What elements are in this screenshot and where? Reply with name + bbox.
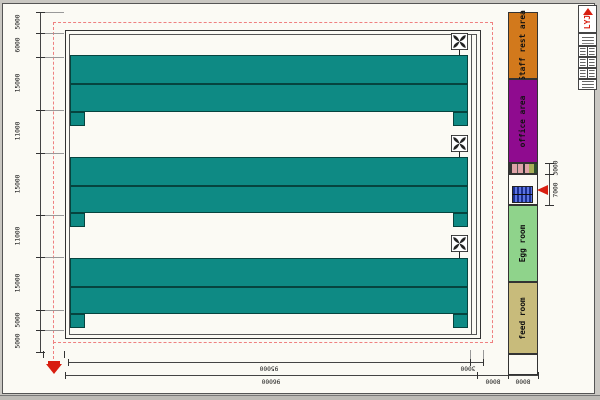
room-staff-rest-area: Staff rest area: [508, 12, 538, 79]
cage-end-tab: [70, 314, 85, 328]
bottom-dim-line-1: [68, 362, 483, 363]
fan-icon: [451, 135, 468, 152]
dim-tick: [538, 372, 539, 379]
dim-label: 11000: [15, 122, 22, 141]
bottom-dim-line-2: [65, 375, 538, 376]
entrance-arrow-icon: [46, 364, 62, 374]
room-label: Egg room: [519, 225, 528, 263]
fan-connector: [459, 50, 460, 55]
room-label: Staff rest area: [519, 10, 528, 80]
dim-label: 15000: [15, 175, 22, 194]
cage-end-tab: [453, 213, 468, 227]
cage-end-tab: [453, 112, 468, 126]
room-office-area: office area: [508, 79, 538, 163]
boundary-dash-stub: [53, 343, 54, 359]
dim-label: 3000: [553, 161, 560, 176]
cage-end-tab: [70, 112, 85, 126]
dim-tick: [545, 205, 554, 206]
door-tick: [43, 351, 44, 358]
dim-tick: [36, 57, 45, 58]
dim-tick: [508, 372, 509, 379]
dim-label: 5000: [15, 334, 22, 349]
annex-dim-line: [549, 163, 550, 205]
cage-end-tab: [70, 213, 85, 227]
dim-tick: [36, 310, 45, 311]
cage-row: [70, 258, 468, 287]
dim-label: 8000: [486, 378, 501, 385]
dim-tick: [65, 372, 66, 379]
room-label: feed room: [519, 297, 528, 339]
dim-tick: [36, 257, 45, 258]
dim-label: 15000: [15, 74, 22, 93]
dim-label: 15000: [15, 274, 22, 293]
stairs-mid-line: [512, 194, 533, 195]
fan-icon: [451, 33, 468, 50]
cage-row: [70, 84, 468, 112]
dim-tick: [36, 33, 45, 34]
room-feed-room: feed room: [508, 282, 538, 354]
cage-row: [70, 186, 468, 213]
left-dim-line: [40, 12, 41, 352]
dim-label: 6000: [15, 38, 22, 53]
title-block-cell: [578, 79, 597, 90]
cage-row: [70, 157, 468, 186]
dim-label: 3000: [461, 365, 476, 372]
dim-tick: [68, 359, 69, 366]
dim-label: 7000: [553, 183, 560, 198]
fan-connector: [459, 252, 460, 258]
corridor-strip: [508, 163, 538, 174]
aisle-partition-line: [471, 34, 472, 335]
room-egg-room: Egg room: [508, 205, 538, 282]
door-tick: [64, 351, 65, 358]
title-block-cell: [587, 46, 597, 57]
dim-tick: [483, 359, 484, 366]
cage-row: [70, 55, 468, 84]
dim-tick: [36, 330, 45, 331]
dim-label: 5000: [15, 313, 22, 328]
dim-label: 96000: [262, 378, 281, 385]
room-label: office area: [519, 95, 528, 147]
dim-label: 5000: [15, 15, 22, 30]
dim-label: 11000: [15, 227, 22, 246]
cad-layout-drawing: Staff rest area office area Egg room fee…: [0, 0, 600, 400]
title-block-row: [578, 33, 597, 46]
cage-end-tab: [453, 314, 468, 328]
dim-tick: [36, 12, 45, 13]
dim-label: 95000: [260, 365, 279, 372]
title-block-cell: [587, 57, 597, 68]
cage-row: [70, 287, 468, 314]
empty-cell: [508, 354, 538, 375]
logo-text: LYJ: [584, 15, 593, 29]
dim-tick: [36, 215, 45, 216]
entrance-arrow-icon: [537, 185, 548, 195]
fan-connector: [459, 152, 460, 157]
title-block-cell: [587, 68, 597, 79]
fan-icon: [451, 235, 468, 252]
dim-tick: [36, 110, 45, 111]
dim-label: 8000: [516, 378, 531, 385]
sheet-bottom-margin: [0, 395, 600, 400]
dim-tick: [477, 372, 478, 379]
dim-tick: [36, 153, 45, 154]
